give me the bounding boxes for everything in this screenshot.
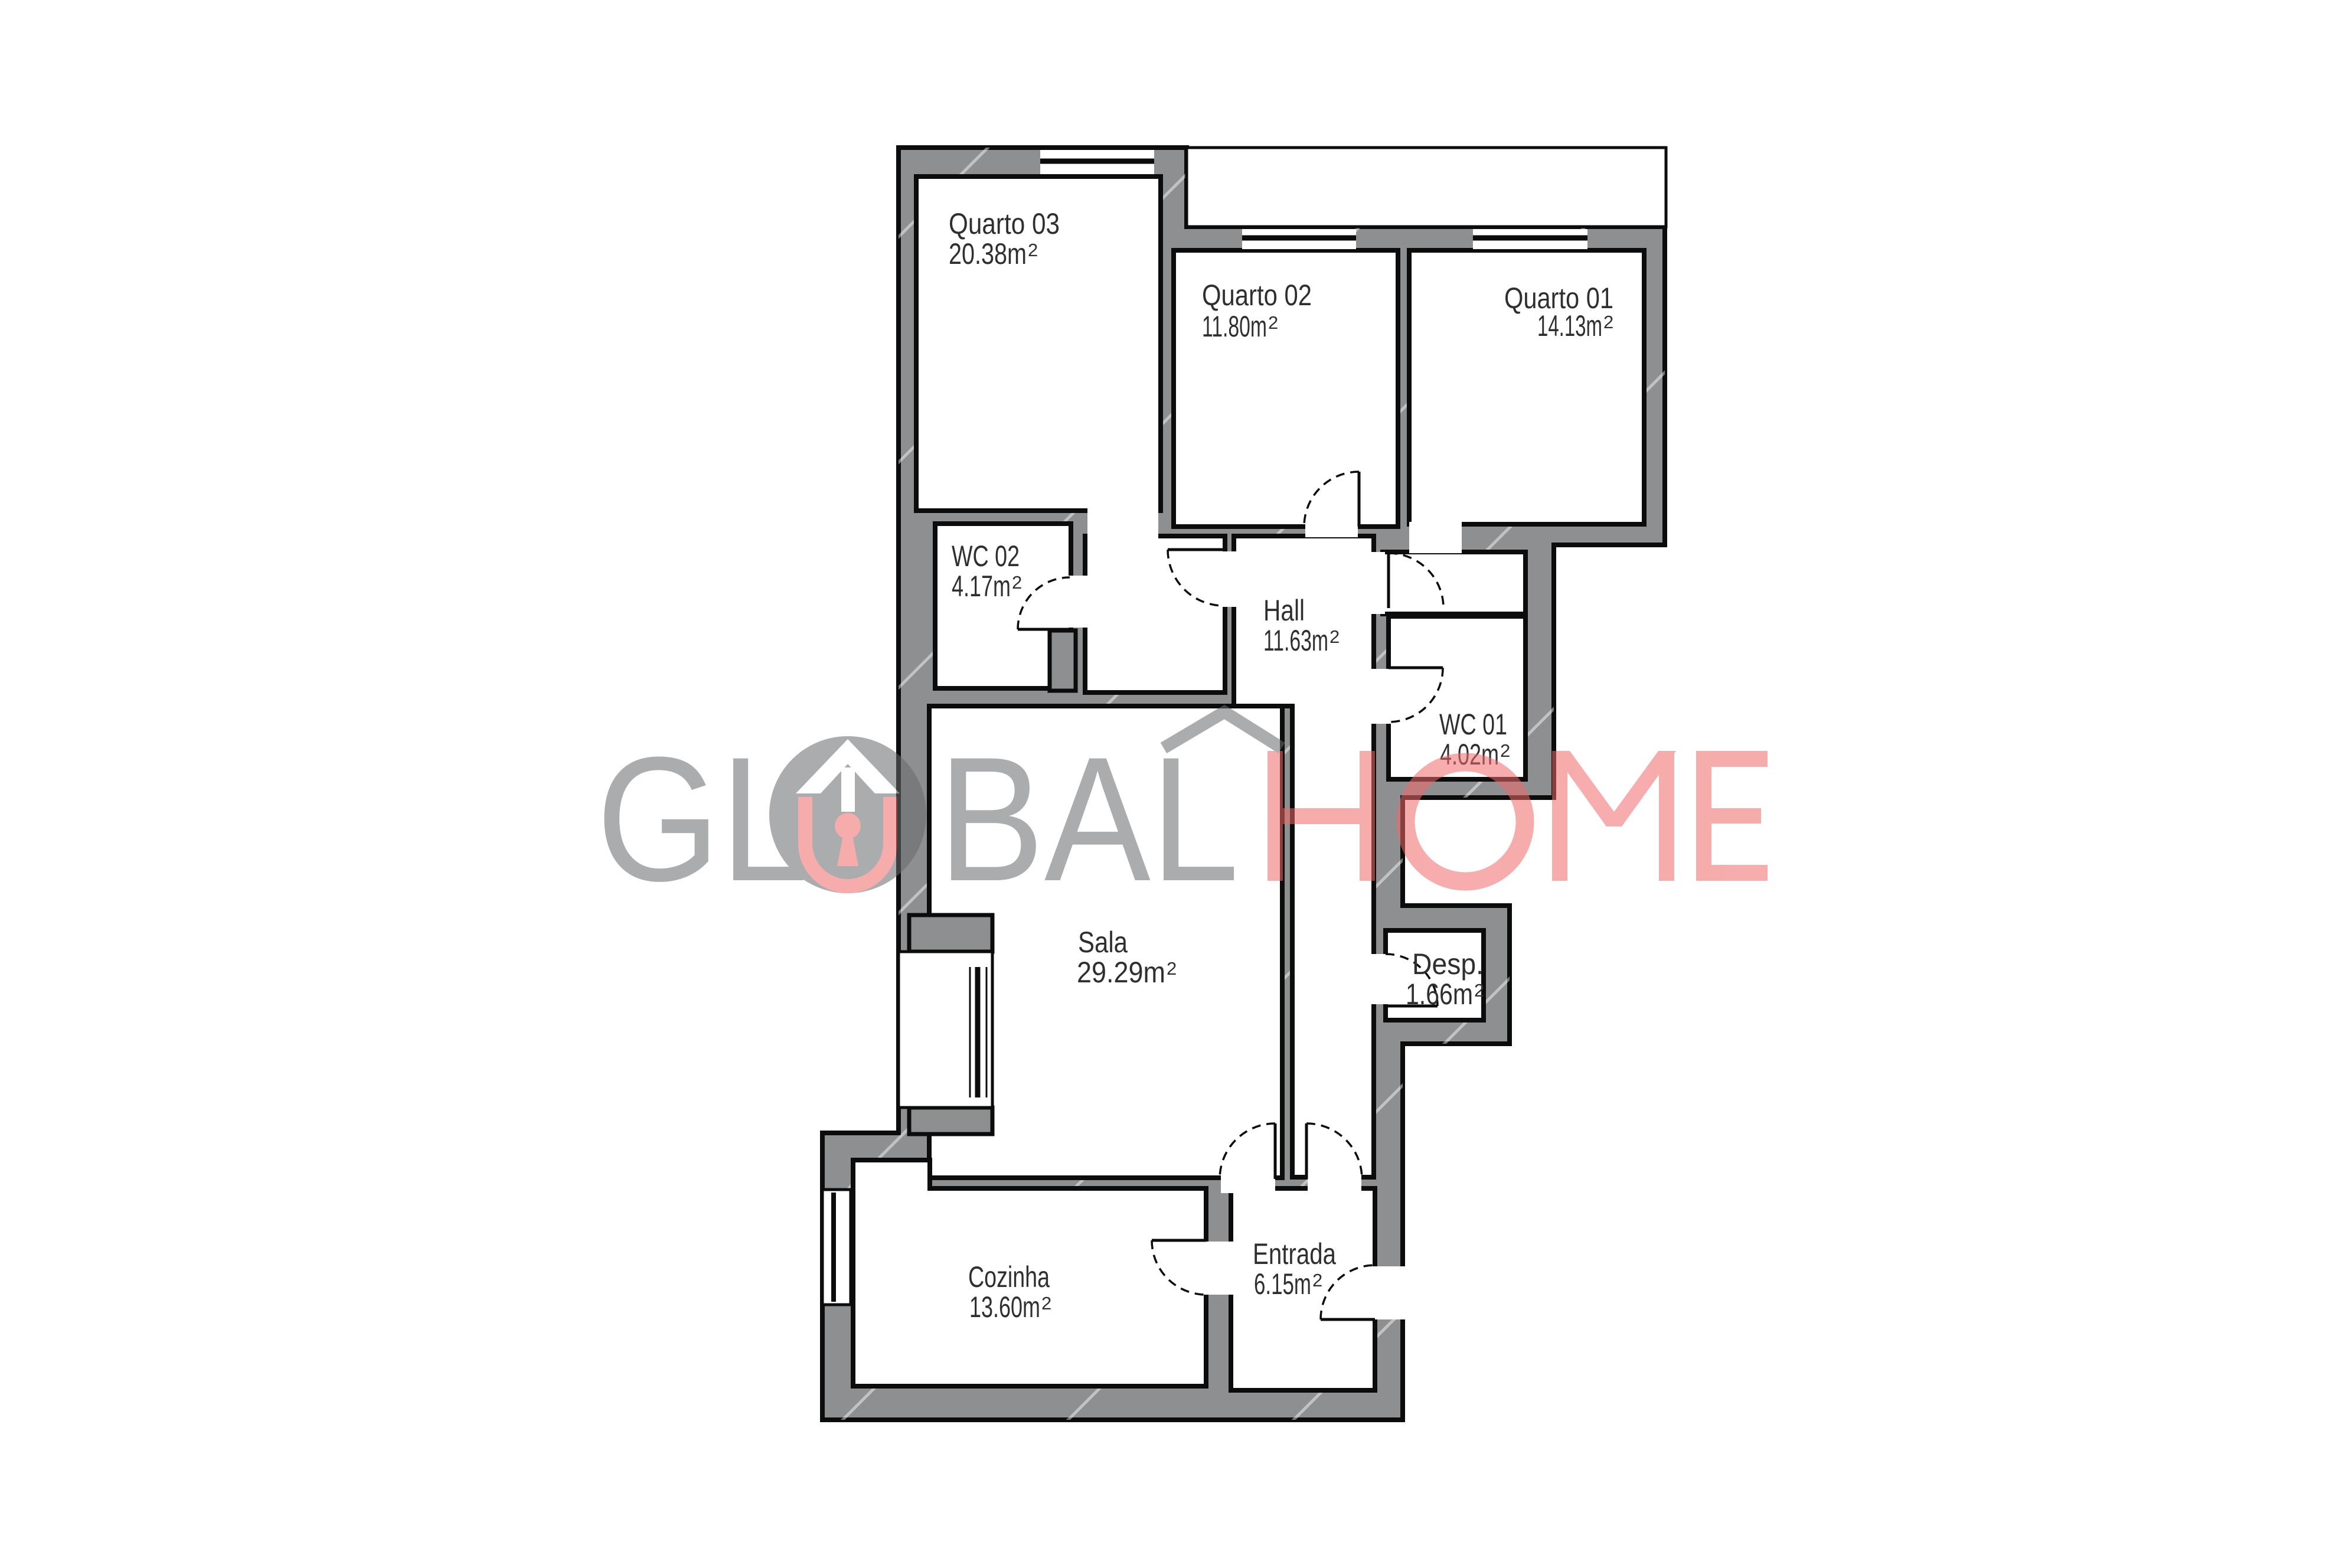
svg-text:2: 2 [1041, 1293, 1051, 1314]
svg-text:29.29m: 29.29m [1077, 956, 1165, 989]
svg-text:Hall: Hall [1263, 594, 1305, 627]
svg-text:Quarto 03: Quarto 03 [949, 207, 1060, 240]
svg-text:14.13m: 14.13m [1537, 309, 1602, 342]
svg-text:Cozinha: Cozinha [968, 1260, 1050, 1293]
svg-text:2: 2 [1603, 312, 1613, 332]
svg-text:6.15m: 6.15m [1254, 1268, 1311, 1301]
svg-text:2: 2 [1268, 312, 1278, 333]
svg-text:BAL: BAL [938, 720, 1239, 918]
svg-text:2: 2 [1312, 1270, 1322, 1291]
svg-text:11.63m: 11.63m [1263, 624, 1328, 657]
svg-text:Desp.: Desp. [1412, 948, 1484, 981]
svg-text:2: 2 [1329, 626, 1340, 647]
svg-text:4.17m: 4.17m [952, 570, 1011, 603]
svg-text:20.38m: 20.38m [949, 237, 1027, 270]
svg-text:Entrada: Entrada [1253, 1237, 1336, 1270]
svg-text:11.80m: 11.80m [1202, 310, 1267, 343]
svg-text:2: 2 [1012, 572, 1022, 593]
svg-text:2: 2 [1028, 240, 1038, 260]
svg-text:2: 2 [1167, 958, 1177, 979]
svg-text:2: 2 [1500, 740, 1510, 761]
svg-text:WC 02: WC 02 [952, 540, 1020, 573]
svg-text:1.66m: 1.66m [1406, 978, 1473, 1011]
svg-text:WC 01: WC 01 [1439, 708, 1507, 741]
svg-text:Sala: Sala [1078, 926, 1128, 959]
svg-text:2: 2 [1474, 980, 1484, 1001]
svg-text:Quarto 02: Quarto 02 [1202, 279, 1312, 312]
svg-text:13.60m: 13.60m [969, 1291, 1040, 1324]
